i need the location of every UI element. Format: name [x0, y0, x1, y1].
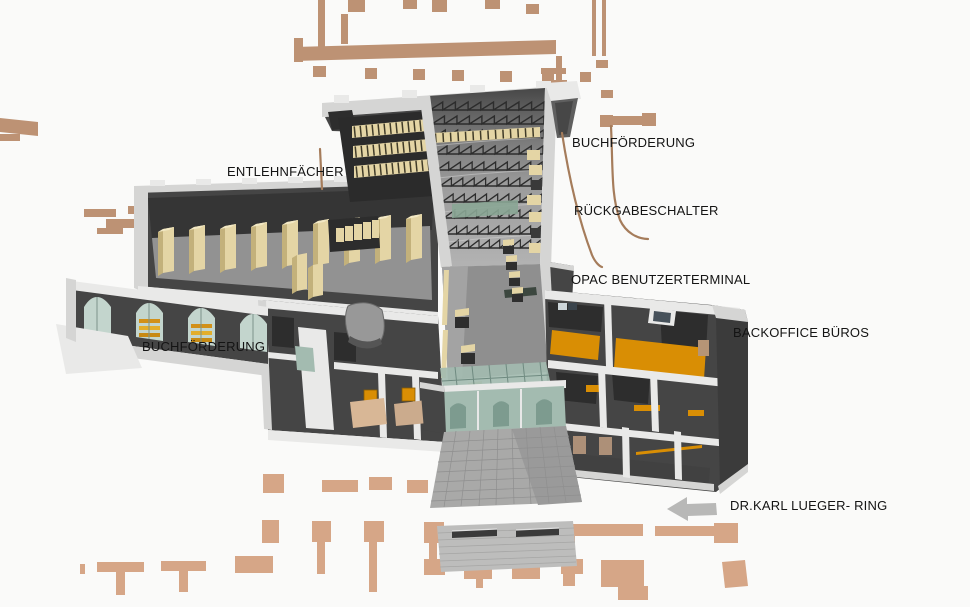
entrance-ramp	[430, 426, 582, 508]
tram-platform	[437, 521, 577, 572]
shelf-rows	[352, 119, 430, 178]
label-buchfoerderung-left: BUCHFÖRDERUNG	[142, 340, 265, 354]
label-backoffice-bueros: BACKOFFICE BÜROS	[733, 326, 869, 340]
label-buchfoerderung-top: BUCHFÖRDERUNG	[572, 136, 695, 150]
axonometric-rendering	[0, 0, 970, 607]
label-rueckgabeschalter: RÜCKGABESCHALTER	[574, 204, 719, 218]
atrium	[420, 87, 557, 268]
context-buildings-bottom	[80, 474, 748, 600]
label-entlehnfaecher: ENTLEHNFÄCHER	[227, 165, 344, 179]
office-skylight	[648, 308, 676, 326]
street-direction-arrow	[667, 497, 717, 521]
floorplan-scene: ENTLEHNFÄCHER BUCHFÖRDERUNG RÜCKGABESCHA…	[0, 0, 970, 607]
backoffice-wing	[545, 290, 748, 494]
middle-block	[258, 300, 445, 452]
leader-buchfoerderung	[562, 133, 602, 267]
label-opac-benutzerterminal: OPAC BENUTZERTERMINAL	[571, 273, 750, 287]
entrance	[420, 362, 582, 508]
label-street-name: DR.KARL LUEGER- RING	[730, 499, 887, 513]
